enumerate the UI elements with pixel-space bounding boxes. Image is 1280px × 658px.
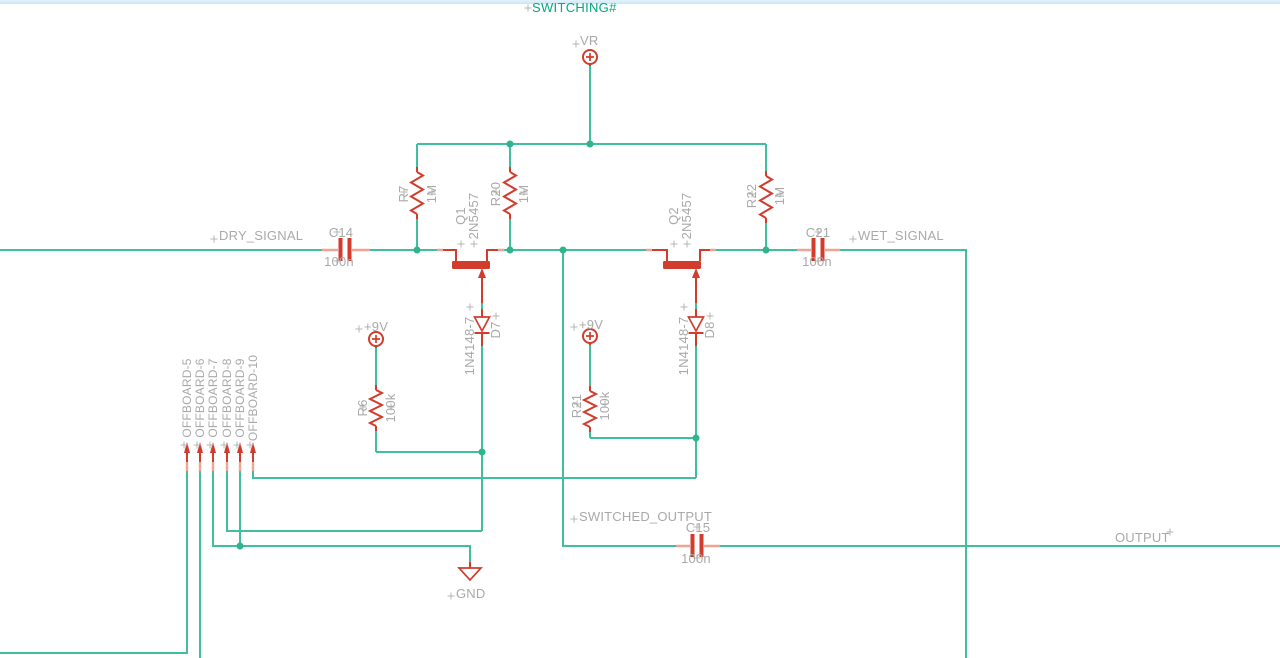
resistor-r21[interactable]	[584, 386, 596, 432]
r6-name[interactable]: R6	[355, 399, 370, 416]
junction	[507, 247, 514, 254]
r21-body	[584, 386, 596, 432]
net-label-dry-signal[interactable]: DRY_SIGNAL	[219, 228, 303, 243]
r7-name[interactable]: R7	[396, 185, 411, 202]
transistor-q1[interactable]	[443, 250, 498, 303]
junction	[763, 247, 770, 254]
power-symbol-vr[interactable]	[583, 50, 597, 66]
c15-name[interactable]: C15	[686, 520, 710, 535]
p9v-left-cross	[372, 335, 380, 343]
offboard-10-label[interactable]: OFFBOARD-10	[246, 355, 260, 441]
q1-value[interactable]: 2N5457	[466, 193, 481, 240]
wire-offboard8	[227, 471, 482, 531]
junction	[560, 247, 567, 254]
q2-gate-arrow	[692, 268, 700, 278]
c14-name[interactable]: C14	[329, 225, 353, 240]
r20-body	[504, 167, 516, 219]
r20-name[interactable]: R20	[488, 182, 503, 206]
d8-name[interactable]: D8	[702, 321, 717, 338]
r21-value[interactable]: 100k	[597, 391, 612, 420]
q1-source-pin	[443, 250, 456, 261]
junction	[587, 141, 594, 148]
net-label-switching[interactable]: SWITCHING#	[532, 0, 617, 15]
c21-name[interactable]: C21	[806, 225, 830, 240]
r20-value[interactable]: 1M	[516, 185, 531, 203]
offboard-7-label[interactable]: OFFBOARD-7	[206, 358, 220, 437]
resistor-r7[interactable]	[411, 167, 423, 219]
wire-offboard7-gnd	[213, 471, 470, 562]
offboard-9-label[interactable]: OFFBOARD-9	[233, 358, 247, 437]
d7-value[interactable]: 1N4148-7	[462, 317, 477, 376]
q2-drain-pin	[700, 250, 710, 261]
wire-offboard5	[0, 471, 187, 653]
vr-cross	[586, 53, 594, 61]
resistor-r20[interactable]	[504, 167, 516, 219]
offboard-pin-stubs	[187, 462, 253, 471]
pin9-arrow	[237, 442, 243, 453]
wire-wet-signal	[840, 250, 966, 658]
r7-value[interactable]: 1M	[424, 185, 439, 203]
r22-name[interactable]: R22	[744, 184, 759, 208]
gnd-label[interactable]: GND	[456, 586, 486, 601]
r6-value[interactable]: 100k	[383, 393, 398, 422]
pin5-arrow	[184, 442, 190, 453]
resistor-r6[interactable]	[370, 385, 382, 431]
pin-stubs	[187, 250, 840, 546]
schematic-drawing: SWITCHING# VR DRY_SIGNAL WET_SIGNAL SWIT…	[0, 0, 1280, 658]
net-label-wet-signal[interactable]: WET_SIGNAL	[858, 228, 944, 243]
junction	[414, 247, 421, 254]
junction	[479, 449, 486, 456]
r7-body	[411, 167, 423, 219]
d7-name[interactable]: D7	[488, 321, 503, 338]
junction	[693, 435, 700, 442]
resistor-r22[interactable]	[760, 171, 772, 223]
r6-body	[370, 385, 382, 431]
p9v-right-label[interactable]: +9V	[579, 317, 603, 332]
q1-channel-bar	[452, 261, 490, 269]
q2-value[interactable]: 2N5457	[679, 193, 694, 240]
d8-value[interactable]: 1N4148-7	[676, 317, 691, 376]
pin6-arrow	[197, 442, 203, 453]
gnd-triangle-icon	[459, 568, 481, 580]
power-symbol-9v-left[interactable]	[369, 332, 383, 348]
q2-source-pin	[652, 250, 667, 261]
offboard-5-label[interactable]: OFFBOARD-5	[180, 358, 194, 437]
offboard-6-label[interactable]: OFFBOARD-6	[193, 358, 207, 437]
net-label-output[interactable]: OUTPUT	[1115, 530, 1170, 545]
wire-offboard10	[253, 471, 696, 478]
p9v-left-label[interactable]: +9V	[364, 319, 388, 334]
transistor-q2[interactable]	[652, 250, 710, 303]
r21-name[interactable]: R21	[569, 394, 584, 418]
q1-gate-arrow	[478, 268, 486, 278]
junction	[237, 543, 244, 550]
p9v-right-cross	[586, 332, 594, 340]
q1-drain-pin	[487, 250, 498, 261]
q2-channel-bar	[663, 261, 701, 269]
gnd-symbol[interactable]	[459, 562, 481, 580]
schematic-editor-canvas[interactable]: SWITCHING# VR DRY_SIGNAL WET_SIGNAL SWIT…	[0, 0, 1280, 658]
c21-value[interactable]: 100n	[802, 254, 832, 269]
r22-body	[760, 171, 772, 223]
pin7-arrow	[210, 442, 216, 453]
c14-value[interactable]: 100n	[324, 254, 354, 269]
pin10-arrow	[250, 442, 256, 453]
c15-value[interactable]: 100n	[681, 551, 711, 566]
junction	[507, 141, 514, 148]
offboard-8-label[interactable]: OFFBOARD-8	[220, 358, 234, 437]
r22-value[interactable]: 1M	[772, 187, 787, 205]
pin8-arrow	[224, 442, 230, 453]
power-label-vr[interactable]: VR	[580, 33, 598, 48]
